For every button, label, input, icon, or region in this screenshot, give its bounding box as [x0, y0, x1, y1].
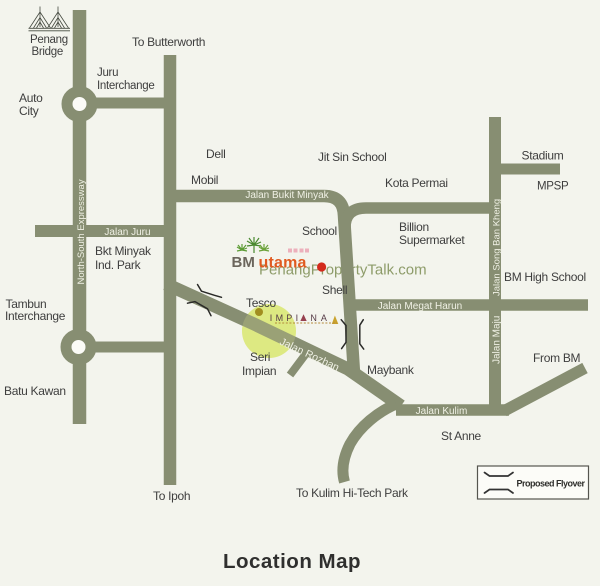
svg-text:utama: utama	[259, 255, 307, 272]
svg-text:Auto: Auto	[19, 91, 43, 105]
svg-text:Tesco: Tesco	[246, 296, 276, 310]
svg-text:Bridge: Bridge	[32, 46, 63, 58]
svg-text:Jalan Bukit Minyak: Jalan Bukit Minyak	[245, 190, 329, 201]
svg-text:Jalan Song Ban Kheng: Jalan Song Ban Kheng	[492, 199, 503, 296]
svg-text:Location Map: Location Map	[223, 550, 361, 573]
svg-text:P: P	[286, 313, 292, 323]
svg-text:Jalan Megat Harun: Jalan Megat Harun	[378, 301, 463, 312]
svg-text:Mobil: Mobil	[191, 173, 218, 187]
svg-text:Impian: Impian	[242, 364, 276, 378]
svg-text:Bkt Minyak: Bkt Minyak	[95, 244, 152, 258]
svg-text:A: A	[321, 313, 327, 323]
svg-text:Kota Permai: Kota Permai	[385, 176, 448, 190]
svg-text:Batu Kawan: Batu Kawan	[4, 384, 66, 398]
svg-text:Proposed Flyover: Proposed Flyover	[517, 479, 586, 489]
svg-text:I: I	[296, 313, 299, 323]
svg-text:Juru: Juru	[97, 67, 118, 79]
svg-text:Ind. Park: Ind. Park	[95, 258, 142, 272]
svg-text:City: City	[19, 104, 39, 118]
svg-text:St Anne: St Anne	[441, 429, 482, 443]
svg-text:M: M	[276, 313, 284, 323]
svg-text:Supermarket: Supermarket	[399, 233, 465, 247]
svg-text:Stadium: Stadium	[522, 149, 564, 163]
svg-text:To Ipoh: To Ipoh	[153, 489, 190, 503]
svg-text:Jalan Kulim: Jalan Kulim	[416, 406, 468, 417]
svg-text:School: School	[302, 224, 337, 238]
svg-text:N: N	[310, 313, 317, 323]
svg-text:Interchange: Interchange	[5, 309, 66, 323]
svg-text:BM: BM	[232, 254, 255, 271]
svg-text:Jit Sin School: Jit Sin School	[318, 150, 387, 164]
svg-text:North-South Expressway: North-South Expressway	[76, 179, 87, 284]
svg-text:Penang: Penang	[30, 34, 68, 46]
svg-text:Jalan Maju: Jalan Maju	[492, 316, 503, 364]
svg-text:Maybank: Maybank	[367, 363, 415, 377]
svg-text:Interchange: Interchange	[97, 80, 154, 92]
svg-text:Jalan Juru: Jalan Juru	[104, 227, 150, 238]
svg-text:I: I	[270, 313, 273, 323]
svg-text:Billion: Billion	[399, 220, 429, 234]
svg-text:Dell: Dell	[206, 147, 225, 161]
svg-text:Seri: Seri	[250, 350, 270, 364]
svg-text:To Butterworth: To Butterworth	[132, 35, 205, 49]
svg-text:BM High School: BM High School	[504, 270, 586, 284]
svg-text:From BM: From BM	[533, 351, 581, 365]
svg-text:Shell: Shell	[322, 283, 347, 297]
svg-text:To Kulim Hi-Tech Park: To Kulim Hi-Tech Park	[296, 486, 409, 500]
svg-text:MPSP: MPSP	[537, 181, 569, 193]
